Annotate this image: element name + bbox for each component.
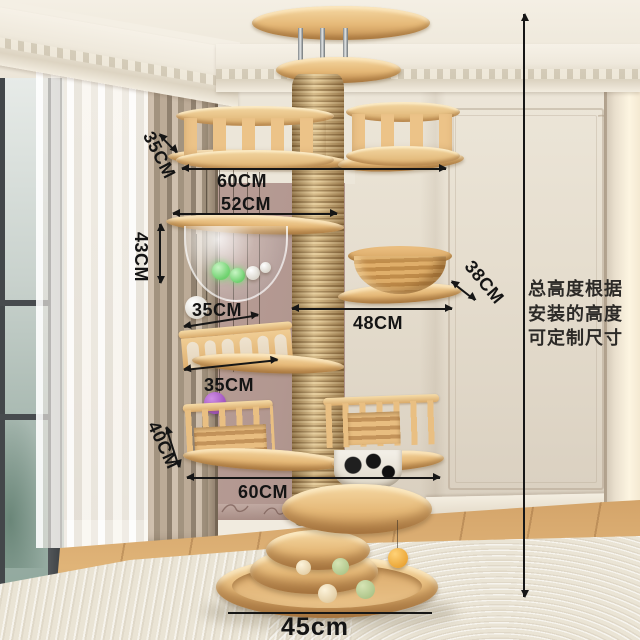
dim-label-base: 45cm [270, 613, 360, 640]
basket-bed-right [346, 102, 460, 164]
base-top-platform [282, 484, 432, 534]
custom-height-note: 总高度根据 安装的高度 可定制尺寸 [528, 277, 623, 351]
note-line: 总高度根据 [528, 277, 623, 302]
track-ball-green [332, 558, 349, 575]
white-ball [260, 262, 271, 273]
track-ball-green [356, 580, 375, 599]
dim-label: 60CM [207, 171, 277, 192]
track-ball-cream [318, 584, 337, 603]
sheer-curtain [36, 62, 152, 548]
dim-arrow-total-height [523, 14, 525, 597]
room-scene: 35CM 60CM 52CM 43CM 38CM 35CM 48CM 35CM … [0, 0, 640, 640]
dim-label: 52CM [214, 194, 278, 215]
white-ball [246, 266, 260, 280]
dim-label: 35CM [202, 375, 256, 396]
basket-bed-left [176, 106, 334, 168]
dim-arrow-lower-width [187, 477, 440, 479]
dim-label: 43CM [130, 232, 151, 277]
base-tier [266, 530, 370, 570]
ceiling-mount-disc [252, 6, 430, 40]
glow-ball [230, 268, 245, 283]
hanging-yellow-ball [388, 548, 408, 568]
dim-label: 60CM [235, 482, 291, 503]
dim-arrow-top-width [182, 168, 446, 170]
dim-arrow-capsule-height [159, 224, 161, 283]
window-frame-left [0, 78, 5, 608]
glow-ball [212, 262, 230, 280]
dim-label: 48CM [350, 313, 406, 334]
note-line: 可定制尺寸 [528, 326, 623, 351]
track-ball-cream [296, 560, 311, 575]
dim-arrow-bowl-platform [292, 308, 452, 310]
play-pen-right [325, 394, 441, 456]
note-line: 安装的高度 [528, 302, 623, 327]
